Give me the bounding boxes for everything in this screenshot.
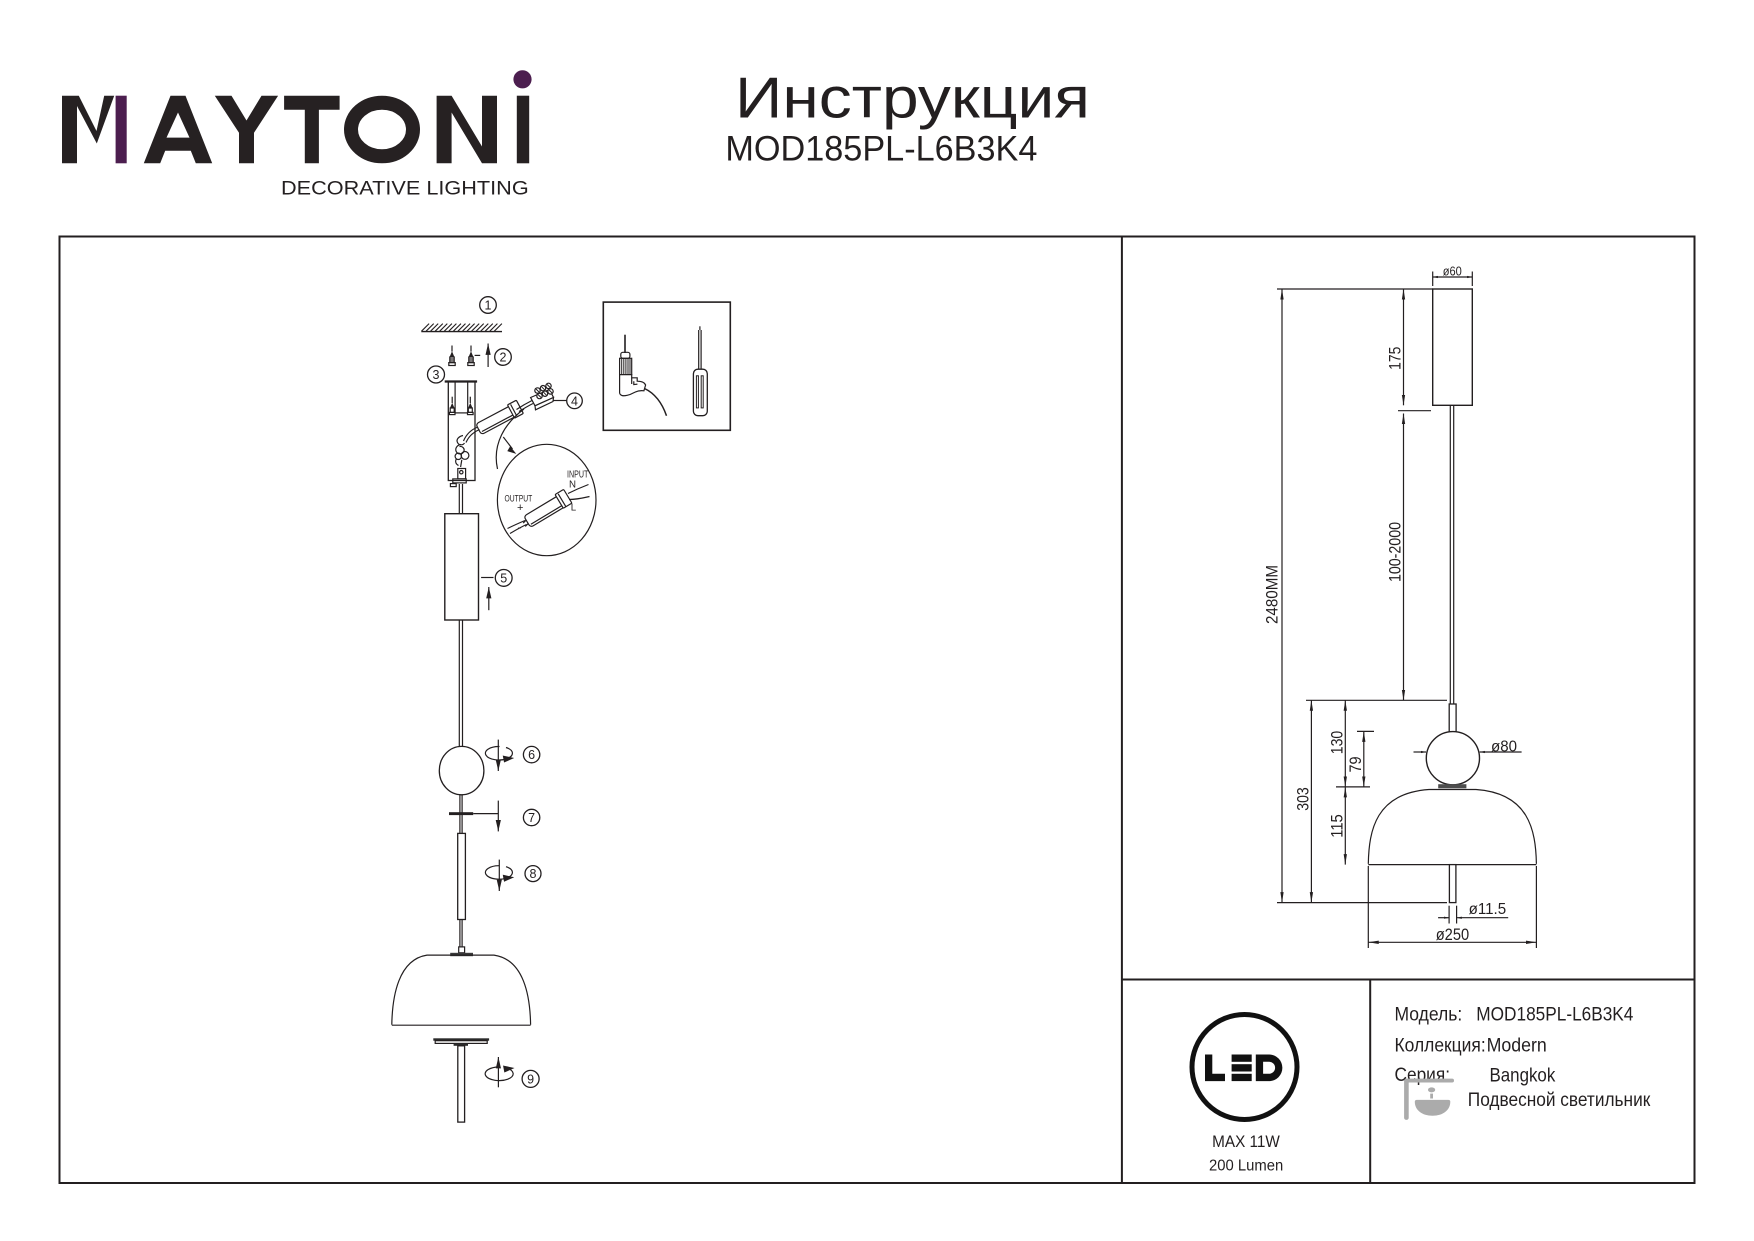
svg-text:303: 303 [1295, 787, 1313, 811]
svg-text:Инструкция: Инструкция [735, 66, 1090, 130]
svg-text:MAX 11W: MAX 11W [1212, 1132, 1280, 1151]
svg-text:79: 79 [1347, 757, 1365, 773]
svg-text:115: 115 [1328, 814, 1346, 838]
svg-text:1: 1 [485, 299, 492, 313]
svg-text:ø60: ø60 [1443, 264, 1462, 279]
svg-text:Серия:: Серия: [1395, 1065, 1451, 1086]
svg-text:200 Lumen: 200 Lumen [1209, 1158, 1283, 1175]
svg-text:100-2000: 100-2000 [1387, 522, 1405, 582]
svg-text:130: 130 [1328, 731, 1346, 755]
svg-text:Модель:: Модель: [1395, 1004, 1463, 1025]
svg-text:MOD185PL-L6B3K4: MOD185PL-L6B3K4 [1476, 1004, 1633, 1025]
svg-text:ø250: ø250 [1436, 926, 1470, 944]
svg-text:3: 3 [433, 368, 440, 382]
svg-text:+: + [517, 502, 523, 514]
svg-text:2: 2 [500, 351, 507, 365]
svg-text:6: 6 [528, 748, 535, 762]
svg-text:DECORATIVE LIGHTING: DECORATIVE LIGHTING [281, 179, 529, 200]
svg-text:7: 7 [528, 811, 535, 825]
svg-text:Подвесной светильник: Подвесной светильник [1468, 1090, 1651, 1111]
svg-text:L: L [571, 503, 577, 514]
svg-text:Modern: Modern [1487, 1036, 1547, 1057]
svg-text:ø80: ø80 [1491, 739, 1517, 756]
svg-text:9: 9 [527, 1072, 534, 1086]
svg-text:175: 175 [1387, 347, 1405, 370]
svg-text:4: 4 [571, 394, 578, 408]
svg-text:8: 8 [530, 867, 537, 881]
svg-text:Bangkok: Bangkok [1490, 1066, 1556, 1087]
svg-text:5: 5 [500, 571, 507, 585]
svg-text:ø11.5: ø11.5 [1469, 901, 1507, 918]
svg-text:N: N [569, 479, 576, 490]
svg-text:Коллекция:: Коллекция: [1395, 1036, 1486, 1057]
svg-text:2480MM: 2480MM [1264, 565, 1282, 624]
svg-text:MOD185PL-L6B3K4: MOD185PL-L6B3K4 [725, 129, 1037, 169]
svg-text:-: - [518, 522, 522, 534]
